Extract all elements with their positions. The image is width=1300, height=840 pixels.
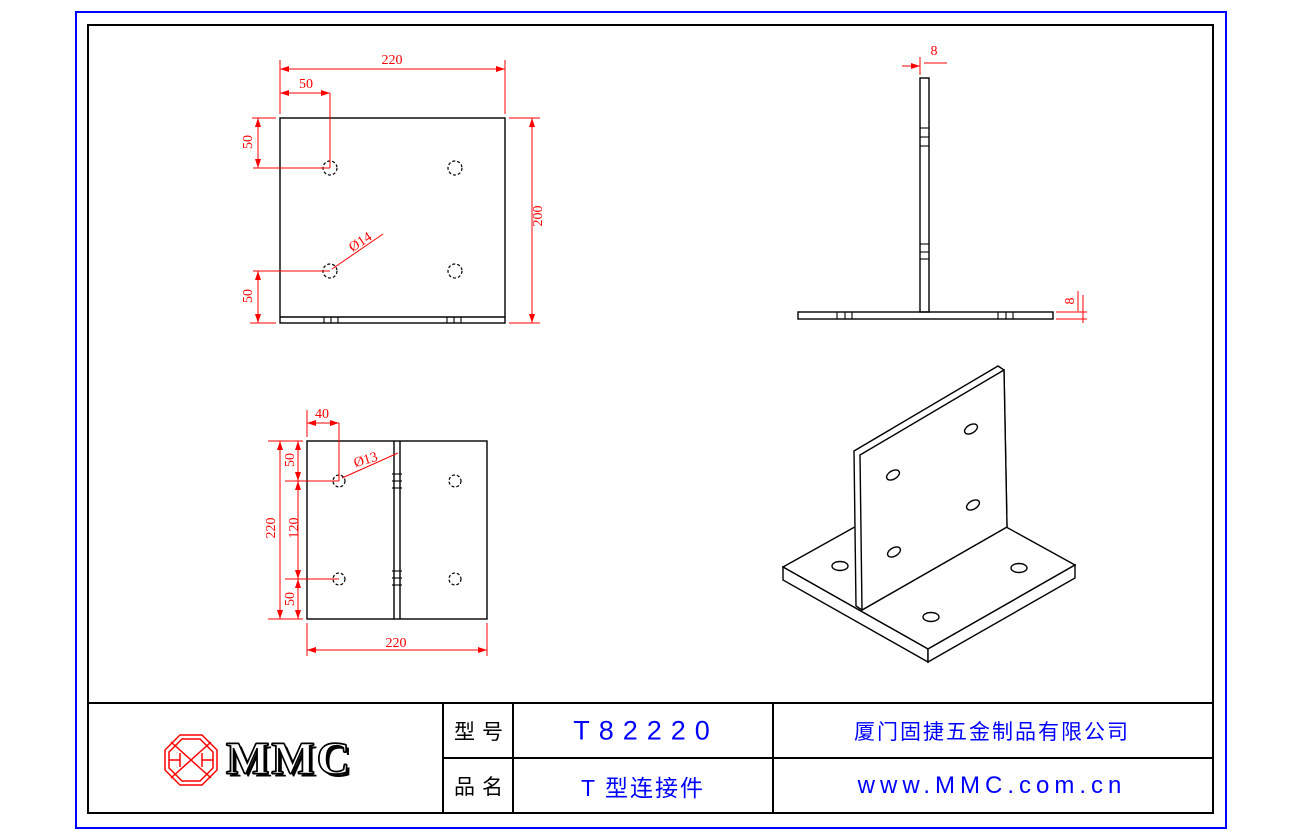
front-view (280, 118, 505, 323)
dim-side-base-thickness: 8 (1063, 298, 1079, 305)
dim-front-left-bottom: 50 (241, 289, 257, 303)
dim-top-seg-bottom: 50 (283, 592, 299, 606)
front-plate-outline (280, 118, 505, 323)
mmc-logo-text: MMC (226, 732, 352, 785)
front-view-dim-lines (250, 60, 540, 323)
website-url: www.MMC.com.cn (858, 772, 1127, 800)
model-value: T82220 (573, 716, 719, 747)
cad-drawing-sheet: 220 50 50 50 200 Ø14 8 8 40 220 50 120 5… (0, 0, 1300, 840)
dim-side-web-thickness: 8 (931, 44, 938, 60)
iso-view (783, 366, 1075, 662)
dim-top-seg-top: 50 (283, 453, 299, 467)
side-base-outline (798, 312, 1053, 319)
side-view (798, 78, 1053, 319)
top-plate-outline (307, 441, 487, 619)
name-label: 品名 (454, 771, 510, 801)
side-view-dim-lines (902, 57, 1087, 323)
dim-top-hole-offset: 40 (315, 407, 329, 423)
dim-top-seg-mid: 120 (287, 518, 303, 539)
dim-front-height: 200 (531, 206, 547, 227)
mmc-logo-icon (165, 735, 217, 785)
top-view-holes (333, 475, 461, 585)
dim-front-hole-offset: 50 (299, 77, 313, 93)
dim-front-left-top: 50 (241, 135, 257, 149)
drawing-linework (0, 0, 1300, 840)
dim-front-width: 220 (382, 53, 403, 69)
company-name: 厦门固捷五金制品有限公司 (854, 716, 1130, 746)
top-view (307, 441, 487, 619)
model-label: 型号 (454, 716, 510, 746)
side-web-outline (920, 78, 929, 312)
name-value: T 型连接件 (581, 769, 705, 803)
dim-top-width: 220 (386, 636, 407, 652)
dim-top-height: 220 (264, 518, 280, 539)
